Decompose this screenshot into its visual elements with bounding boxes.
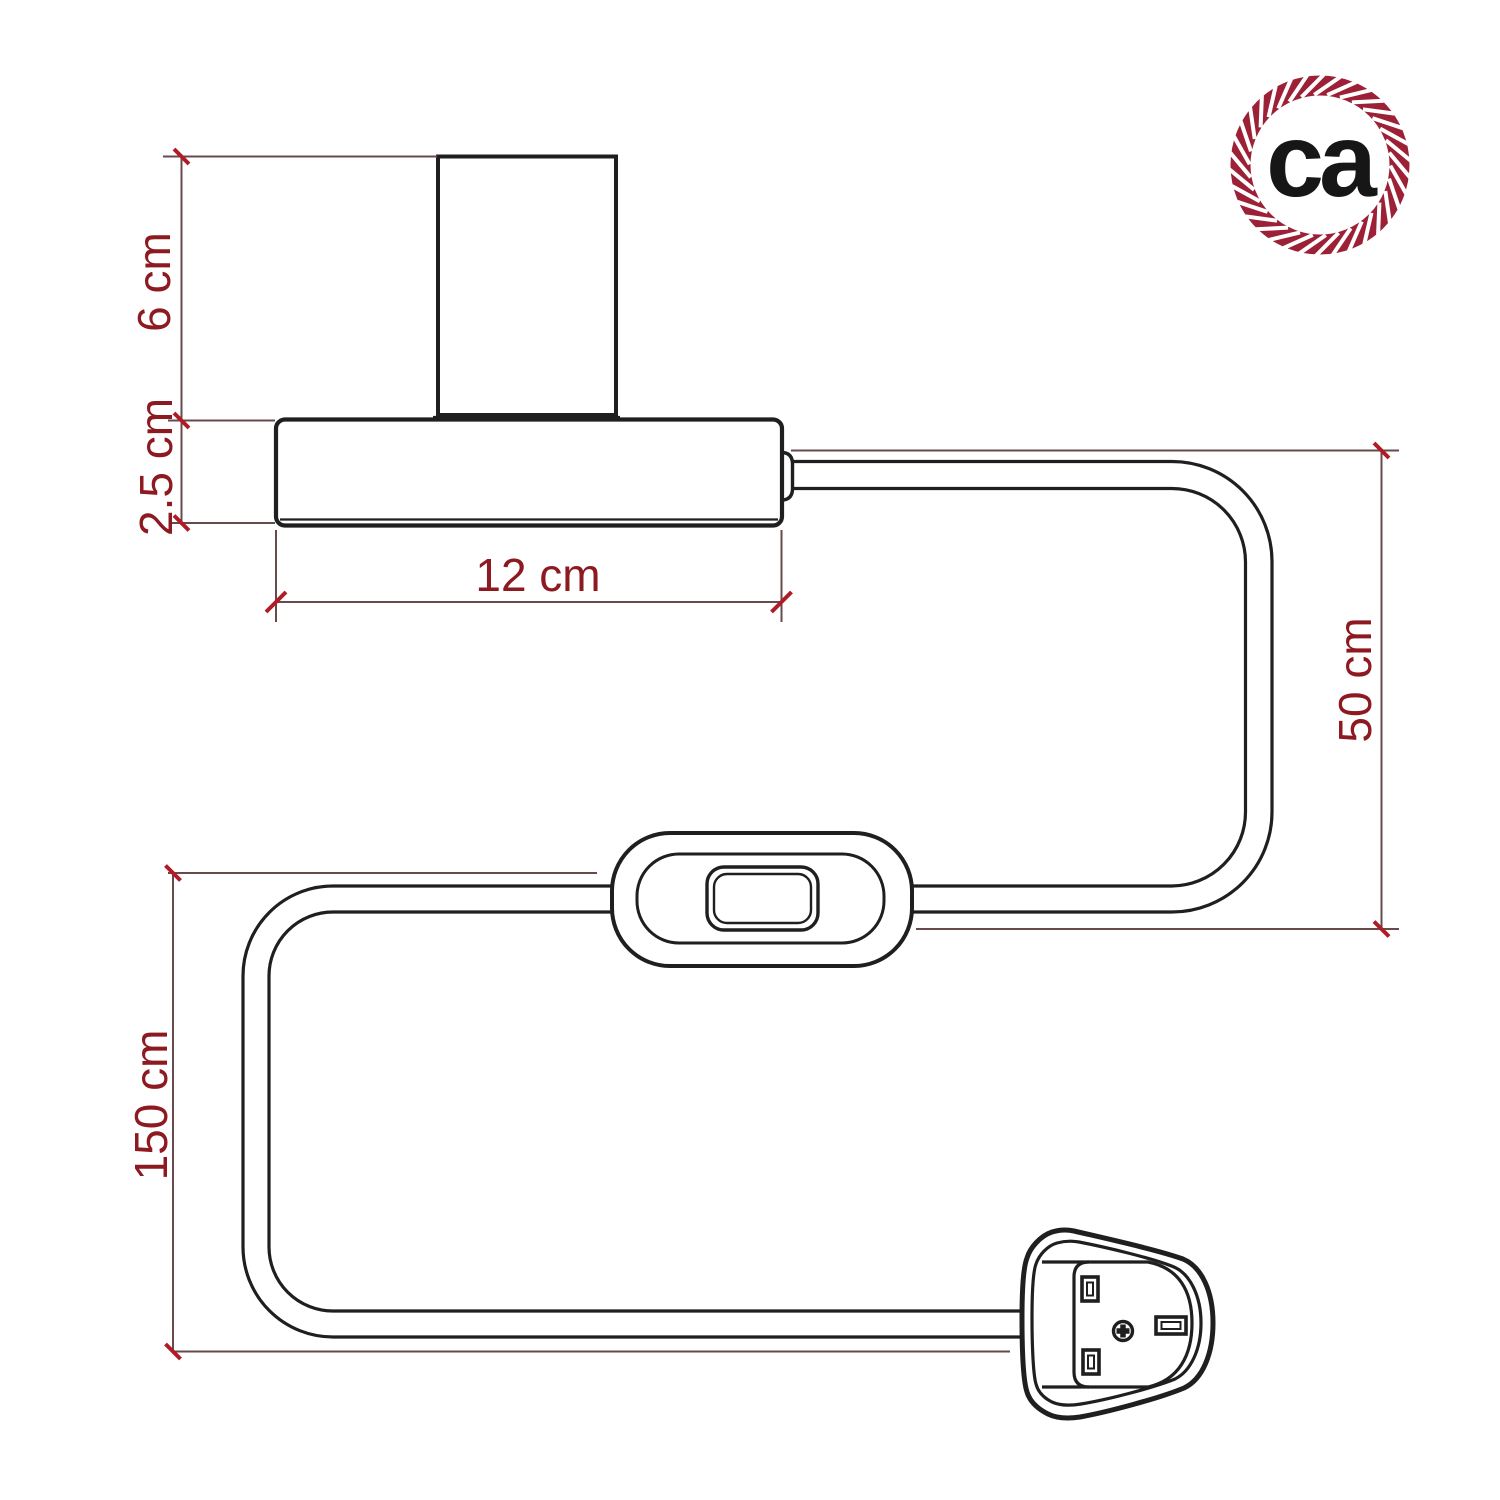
svg-text:12 cm: 12 cm [475,549,600,601]
svg-text:150 cm: 150 cm [125,1030,177,1181]
svg-text:6 cm: 6 cm [128,232,180,332]
svg-text:ca: ca [1266,103,1378,219]
svg-text:50 cm: 50 cm [1329,617,1381,742]
svg-text:2.5 cm: 2.5 cm [130,398,182,536]
